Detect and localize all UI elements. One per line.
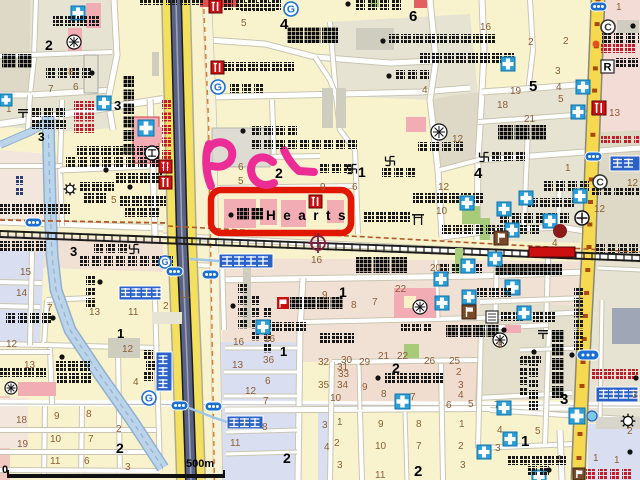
svg-text:1: 1: [117, 326, 124, 341]
svg-text:6: 6: [238, 162, 244, 173]
svg-text:12: 12: [594, 204, 606, 215]
svg-text:5: 5: [558, 94, 564, 105]
svg-text:3: 3: [38, 130, 45, 144]
svg-text:3: 3: [125, 462, 131, 473]
svg-text:14: 14: [16, 288, 28, 299]
svg-text:9: 9: [362, 382, 368, 393]
svg-text:11: 11: [375, 470, 386, 480]
svg-text:3: 3: [70, 244, 77, 259]
svg-text:4: 4: [422, 85, 428, 96]
svg-text:10: 10: [375, 441, 387, 452]
svg-text:5: 5: [468, 399, 474, 410]
svg-text:10: 10: [436, 206, 448, 217]
svg-text:11: 11: [230, 438, 241, 449]
svg-text:8: 8: [351, 300, 357, 311]
svg-text:12: 12: [438, 182, 450, 193]
svg-text:3: 3: [632, 390, 638, 401]
svg-text:10: 10: [330, 393, 342, 404]
svg-text:G: G: [161, 257, 168, 267]
svg-text:1: 1: [565, 163, 571, 174]
svg-text:C: C: [604, 22, 612, 34]
svg-text:5: 5: [241, 18, 247, 29]
svg-text:2: 2: [275, 165, 283, 181]
svg-text:9: 9: [497, 340, 503, 351]
svg-text:6: 6: [84, 456, 90, 467]
svg-text:19: 19: [510, 86, 522, 97]
svg-text:G: G: [214, 82, 222, 94]
svg-text:1: 1: [459, 419, 465, 430]
svg-text:12: 12: [6, 339, 18, 350]
svg-text:18: 18: [497, 100, 509, 111]
svg-text:3: 3: [322, 420, 328, 431]
svg-text:6: 6: [73, 82, 79, 93]
svg-text:4: 4: [474, 165, 483, 182]
svg-text:22: 22: [395, 284, 407, 295]
svg-text:2: 2: [45, 37, 53, 53]
svg-text:7: 7: [263, 396, 269, 407]
svg-text:3: 3: [460, 460, 466, 471]
svg-text:13: 13: [232, 360, 244, 371]
svg-text:R: R: [604, 62, 612, 74]
svg-text:3: 3: [337, 460, 343, 471]
svg-text:1: 1: [280, 344, 287, 359]
svg-text:4: 4: [458, 390, 464, 401]
svg-text:6: 6: [265, 376, 271, 387]
svg-text:4: 4: [552, 238, 558, 249]
svg-text:5: 5: [238, 176, 244, 187]
svg-text:C: C: [596, 177, 604, 189]
svg-text:8: 8: [262, 422, 268, 433]
svg-text:9: 9: [378, 419, 384, 430]
svg-text:6: 6: [352, 182, 358, 193]
svg-text:10: 10: [50, 434, 62, 445]
svg-text:2: 2: [563, 36, 569, 47]
svg-text:2: 2: [458, 441, 464, 452]
svg-text:1: 1: [593, 453, 599, 464]
svg-text:34: 34: [337, 380, 349, 391]
svg-text:16: 16: [480, 22, 492, 33]
svg-text:9: 9: [320, 182, 326, 193]
svg-text:2: 2: [283, 450, 291, 466]
svg-text:2: 2: [116, 424, 122, 435]
svg-text:5: 5: [535, 426, 541, 437]
svg-text:13: 13: [89, 307, 101, 318]
svg-text:11: 11: [180, 290, 191, 301]
svg-text:12: 12: [122, 344, 134, 355]
svg-text:5: 5: [529, 78, 537, 95]
svg-text:7: 7: [48, 84, 54, 95]
svg-text:3: 3: [495, 443, 501, 454]
svg-text:8: 8: [416, 419, 422, 430]
svg-text:G: G: [145, 393, 153, 405]
svg-text:21: 21: [524, 114, 536, 125]
svg-text:4: 4: [497, 425, 503, 436]
svg-text:1: 1: [614, 455, 620, 466]
svg-text:25: 25: [449, 356, 461, 367]
svg-text:2: 2: [528, 37, 534, 48]
svg-text:3: 3: [560, 391, 568, 408]
svg-text:1: 1: [521, 433, 529, 450]
svg-text:8: 8: [86, 409, 92, 420]
svg-text:2: 2: [627, 426, 633, 437]
svg-text:12: 12: [452, 134, 464, 145]
svg-text:32: 32: [318, 357, 330, 368]
svg-text:3: 3: [555, 66, 561, 77]
svg-text:1: 1: [339, 284, 347, 300]
svg-text:16: 16: [233, 337, 245, 348]
svg-text:8: 8: [68, 67, 74, 78]
svg-text:3: 3: [114, 98, 121, 113]
svg-text:4: 4: [133, 377, 139, 388]
svg-text:2: 2: [414, 463, 422, 480]
svg-text:11: 11: [50, 456, 61, 467]
svg-text:1: 1: [337, 417, 343, 428]
svg-text:2: 2: [163, 301, 169, 312]
svg-text:5: 5: [111, 195, 117, 206]
svg-text:6: 6: [446, 400, 452, 411]
svg-text:29: 29: [359, 357, 371, 368]
svg-text:36: 36: [263, 355, 275, 366]
svg-text:G: G: [287, 4, 295, 16]
svg-text:4: 4: [556, 82, 562, 93]
svg-text:500m: 500m: [186, 458, 214, 470]
svg-text:15: 15: [20, 267, 32, 278]
svg-text:9: 9: [322, 290, 328, 301]
svg-text:12: 12: [245, 386, 257, 397]
svg-text:16: 16: [264, 334, 276, 345]
svg-text:7: 7: [47, 303, 53, 314]
svg-text:1: 1: [616, 2, 622, 13]
svg-text:2: 2: [456, 367, 462, 378]
svg-text:8: 8: [381, 389, 387, 400]
svg-text:19: 19: [17, 439, 29, 450]
svg-text:31: 31: [337, 362, 349, 373]
svg-text:7: 7: [88, 434, 94, 445]
svg-text:Hearts: Hearts: [266, 208, 353, 223]
svg-text:2: 2: [116, 440, 124, 456]
svg-text:2: 2: [334, 438, 340, 449]
svg-text:7: 7: [410, 392, 416, 403]
svg-text:21: 21: [378, 351, 390, 362]
svg-text:13: 13: [609, 108, 621, 119]
svg-text:4: 4: [324, 442, 330, 453]
svg-text:18: 18: [16, 415, 28, 426]
svg-text:9: 9: [54, 411, 60, 422]
svg-text:26: 26: [424, 356, 436, 367]
svg-text:7: 7: [372, 297, 378, 308]
svg-text:35: 35: [318, 380, 330, 391]
svg-text:7: 7: [416, 441, 422, 452]
svg-text:6: 6: [409, 8, 417, 25]
svg-text:11: 11: [128, 307, 139, 318]
svg-text:1: 1: [358, 164, 366, 180]
svg-text:16: 16: [311, 255, 323, 266]
